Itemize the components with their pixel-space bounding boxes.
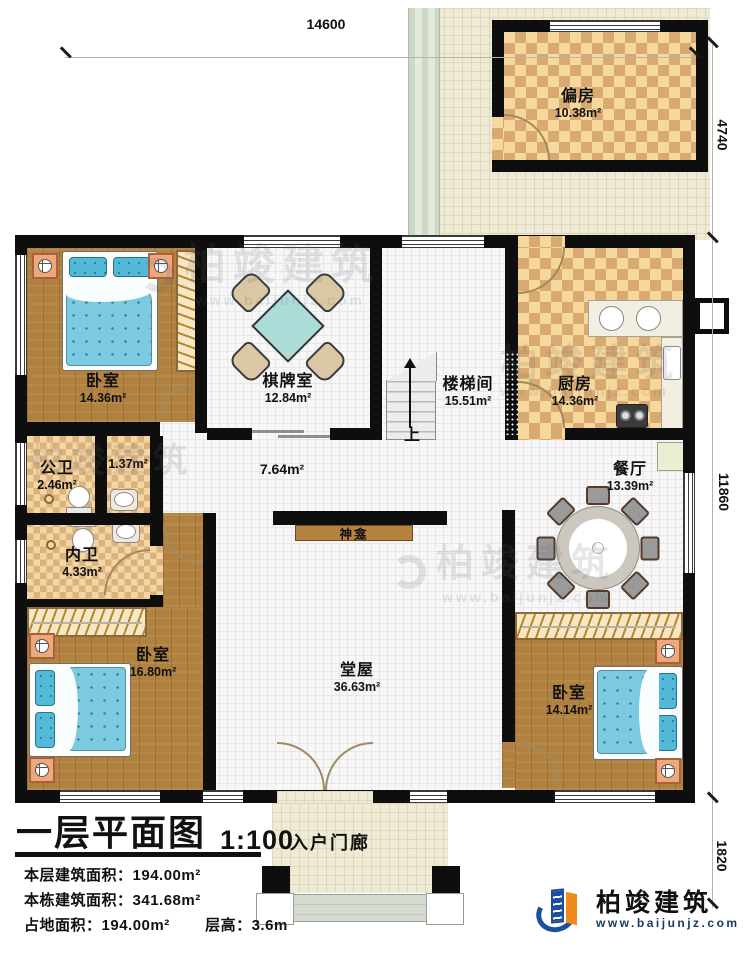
stairs-arrowhead-icon — [404, 358, 416, 368]
room-label-nook: 1.37m² — [108, 457, 148, 471]
window — [15, 443, 27, 505]
sliding-door — [278, 435, 330, 438]
wall — [565, 428, 683, 440]
lamp-icon — [35, 639, 49, 653]
door-opening — [502, 742, 515, 788]
window — [203, 790, 243, 803]
page-title: 一层平面图 — [16, 804, 206, 856]
company-logo: 柏竣建筑 www.baijunjz.com — [536, 884, 740, 936]
window — [402, 235, 484, 248]
basin-bowl — [116, 524, 136, 539]
wall — [15, 422, 160, 436]
bed-bedroom3 — [593, 666, 683, 760]
window — [244, 235, 340, 248]
nightstand — [148, 253, 174, 279]
door-opening — [150, 546, 163, 595]
wall — [150, 436, 163, 546]
stat-floor-height: 层高： — [205, 917, 252, 934]
room-label-bedroom1: 卧室 14.36m² — [80, 373, 127, 405]
stat-building-area: 本栋建筑面积：341.68m² — [24, 889, 201, 910]
nightstand — [655, 638, 681, 664]
wall — [15, 235, 695, 248]
company-name: 柏竣建筑 — [596, 890, 740, 916]
wall — [330, 428, 370, 440]
dimension-line-top — [65, 57, 695, 58]
bed-bedroom1 — [62, 251, 158, 371]
lamp-icon — [661, 644, 675, 658]
window — [15, 540, 27, 583]
courtyard-steps — [408, 8, 440, 240]
wall — [370, 247, 382, 440]
room-label-qipaishi: 棋牌室 12.84m² — [262, 373, 313, 405]
room-label-pianfang: 偏房 10.38m² — [555, 88, 602, 120]
room-label-bedroom3: 卧室 14.14m² — [546, 685, 593, 717]
porch-steps — [293, 894, 427, 922]
wall — [203, 513, 216, 790]
pillow — [35, 670, 55, 706]
room-label-gongwei: 公卫 2.46m² — [37, 460, 77, 492]
sliding-door — [252, 430, 304, 433]
stat-floor-area: 本层建筑面积：194.00m² — [24, 864, 201, 885]
wall — [502, 510, 515, 742]
window — [683, 473, 695, 573]
wall — [207, 428, 252, 440]
bed-bedroom2 — [29, 663, 131, 757]
door-opening — [492, 117, 504, 160]
wall — [195, 247, 207, 433]
porch-column — [432, 866, 460, 894]
room-label-porch: 入户门廊 — [290, 833, 370, 853]
title-block: 一层平面图 1:100 — [16, 804, 294, 856]
title-underline — [15, 852, 261, 857]
stairs-arrow — [409, 366, 411, 428]
lamp-icon — [661, 764, 675, 778]
wall — [696, 20, 708, 172]
floor-plan: 偏房 10.38m² 卧室 14.36m² 棋牌室 12.84m² 楼梯间 15… — [0, 0, 750, 953]
room-label-loutijian: 楼梯间 15.51m² — [442, 376, 493, 408]
shrine-label: 神龛 — [339, 524, 368, 543]
wall — [492, 160, 708, 172]
wall — [95, 436, 107, 515]
logo-mark-icon — [536, 884, 588, 936]
chair — [537, 537, 556, 561]
nightstand — [655, 758, 681, 784]
nightstand — [32, 253, 58, 279]
kitchen-sink — [663, 346, 681, 380]
lamp-icon — [154, 259, 168, 273]
wall — [492, 20, 504, 117]
window — [15, 255, 27, 375]
wardrobe-bedroom3 — [515, 612, 683, 640]
dimension-right-bottom: 1820 — [714, 836, 730, 876]
window — [60, 790, 160, 803]
nightstand — [29, 757, 55, 783]
stat-site-area: 占地面积：194.00m² 层高：3.6m — [24, 914, 288, 935]
blanket-fold — [58, 667, 78, 751]
burner-icon — [634, 410, 645, 421]
burner-icon — [620, 410, 631, 421]
room-label-hallway: 7.64m² — [260, 462, 304, 478]
window — [550, 20, 660, 32]
dimension-right-top: 4740 — [715, 113, 731, 158]
pillow — [35, 712, 55, 748]
window — [410, 790, 447, 803]
dimension-right-middle: 11860 — [716, 466, 732, 518]
pillow — [657, 715, 677, 751]
lamp-icon — [38, 259, 52, 273]
chair — [641, 537, 660, 561]
dimension-top: 14600 — [276, 16, 376, 32]
chair — [586, 590, 610, 609]
kitchen-basin — [599, 306, 624, 331]
flue-duct — [505, 352, 518, 435]
pillow — [69, 257, 107, 277]
room-label-kitchen: 厨房 14.36m² — [552, 376, 599, 408]
pillow — [657, 673, 677, 709]
floor-drain-icon — [44, 494, 54, 504]
room-label-dining: 餐厅 13.39m² — [607, 461, 654, 493]
nightstand — [29, 633, 55, 659]
dining-table-center — [592, 542, 604, 554]
room-label-neiwei: 内卫 4.33m² — [62, 547, 102, 579]
porch-column — [262, 866, 290, 894]
kitchen-basin — [636, 306, 661, 331]
dimension-tick — [707, 791, 719, 803]
wall — [15, 513, 150, 525]
pillow — [113, 257, 151, 277]
cabinet — [657, 442, 684, 471]
dimension-line-right — [712, 45, 713, 908]
room-label-tangwu: 堂屋 36.63m² — [334, 662, 381, 694]
floor-drain-icon — [46, 540, 56, 550]
wall — [27, 599, 150, 607]
column-base — [426, 893, 464, 925]
stairs-up-label: 上 — [404, 421, 420, 445]
basin-bowl — [114, 492, 134, 507]
door-opening — [518, 428, 565, 440]
blanket-fold — [639, 670, 659, 754]
door-opening — [163, 513, 203, 525]
window — [555, 790, 655, 803]
company-website: www.baijunjz.com — [596, 916, 740, 930]
room-label-bedroom2: 卧室 16.80m² — [130, 647, 177, 679]
door-opening — [277, 791, 373, 803]
lamp-icon — [35, 763, 49, 777]
wall — [150, 595, 163, 607]
